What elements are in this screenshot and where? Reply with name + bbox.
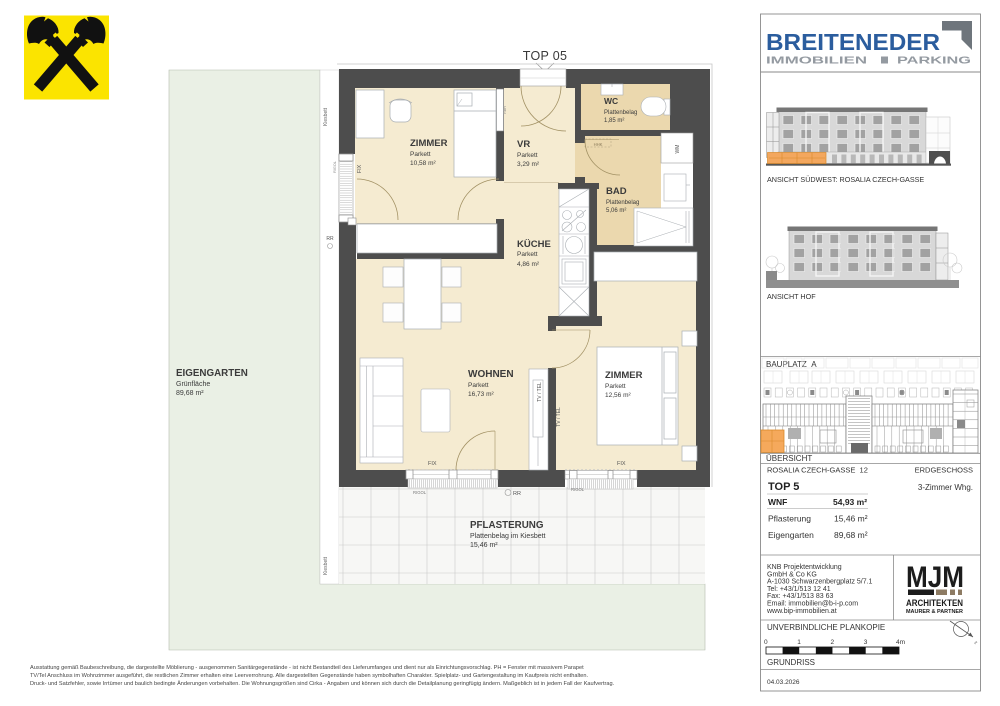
svg-text:TV/Tel Anschluss im Wohnzimmer: TV/Tel Anschluss im Wohnzimmer ausgeführ… xyxy=(30,673,588,679)
svg-text:1: 1 xyxy=(797,639,801,646)
svg-text:RR: RR xyxy=(326,236,334,242)
svg-text:Druck- und Satzfehler, sowie I: Druck- und Satzfehler, sowie Irrtümer un… xyxy=(30,680,615,687)
svg-text:IMMOBILIEN: IMMOBILIEN xyxy=(766,56,867,67)
svg-text:Parkett: Parkett xyxy=(605,383,626,390)
svg-text:BAUPLATZ A: BAUPLATZ A xyxy=(766,360,817,369)
svg-text:GmbH & Co KG: GmbH & Co KG xyxy=(767,571,817,578)
svg-text:www.bip-immobilien.at: www.bip-immobilien.at xyxy=(766,608,837,615)
svg-text:WC: WC xyxy=(604,96,618,106)
svg-text:FIX: FIX xyxy=(617,461,626,467)
svg-text:WNF: WNF xyxy=(768,497,787,507)
svg-text:ZIMMER: ZIMMER xyxy=(605,370,643,381)
svg-text:3: 3 xyxy=(864,639,868,646)
svg-text:1,85 m²: 1,85 m² xyxy=(604,118,624,124)
svg-text:15,46 m²: 15,46 m² xyxy=(834,514,868,524)
svg-text:EIGENGARTEN: EIGENGARTEN xyxy=(176,368,248,379)
svg-text:PFLASTERUNG: PFLASTERUNG xyxy=(470,520,544,531)
svg-text:Kiesbett: Kiesbett xyxy=(323,556,329,575)
svg-text:Tel: +43/1/513 12 41: Tel: +43/1/513 12 41 xyxy=(767,586,831,593)
svg-text:ROSALIA CZECH-GASSE 12: ROSALIA CZECH-GASSE 12 xyxy=(767,466,868,475)
svg-text:Parkett: Parkett xyxy=(517,152,538,159)
svg-text:VR: VR xyxy=(517,139,530,150)
svg-text:BREITENEDER: BREITENEDER xyxy=(766,29,940,55)
svg-text:Kiesbett: Kiesbett xyxy=(323,107,329,126)
svg-text:ANSICHT HOF: ANSICHT HOF xyxy=(767,292,816,301)
svg-text:FIX: FIX xyxy=(357,164,363,173)
svg-text:89,68 m²: 89,68 m² xyxy=(176,390,204,397)
svg-text:ZIMMER: ZIMMER xyxy=(410,138,448,149)
svg-text:4m: 4m xyxy=(896,639,905,646)
svg-text:WOHNEN: WOHNEN xyxy=(468,369,514,380)
svg-text:FIX: FIX xyxy=(428,461,437,467)
svg-text:Grünfläche: Grünfläche xyxy=(176,381,210,388)
svg-text:TOP 5: TOP 5 xyxy=(768,481,799,493)
svg-text:Email: immobilien@b-i-p.com: Email: immobilien@b-i-p.com xyxy=(767,601,858,608)
svg-text:ANSICHT SÜDWEST: ROSALIA CZECH: ANSICHT SÜDWEST: ROSALIA CZECH-GASSE xyxy=(767,175,924,184)
svg-text:16,73 m²: 16,73 m² xyxy=(468,391,494,398)
svg-text:04.03.2026: 04.03.2026 xyxy=(767,679,800,686)
svg-text:0: 0 xyxy=(764,639,768,646)
svg-text:10,58 m²: 10,58 m² xyxy=(410,160,436,167)
svg-text:3,29 m²: 3,29 m² xyxy=(517,161,540,168)
svg-text:MAURER & PARTNER: MAURER & PARTNER xyxy=(906,609,963,615)
svg-text:RBH: RBH xyxy=(503,106,507,114)
svg-text:Parkett: Parkett xyxy=(410,151,431,158)
svg-text:TV / TEL: TV / TEL xyxy=(537,382,543,402)
svg-text:UNVERBINDLICHE PLANKOPIE: UNVERBINDLICHE PLANKOPIE xyxy=(767,623,885,632)
svg-text:GRUNDRISS: GRUNDRISS xyxy=(767,658,815,667)
svg-text:Plattenbelag im Kiesbett: Plattenbelag im Kiesbett xyxy=(470,533,546,540)
svg-text:89,68 m²: 89,68 m² xyxy=(834,530,868,540)
svg-text:HHK: HHK xyxy=(594,142,603,147)
svg-text:TOP 05: TOP 05 xyxy=(523,49,567,63)
svg-text:WM: WM xyxy=(675,145,681,154)
svg-text:2: 2 xyxy=(831,639,835,646)
svg-text:RIGOL: RIGOL xyxy=(413,490,427,495)
svg-text:A-1030 Schwarzenbergplatz 5/7.: A-1030 Schwarzenbergplatz 5/7.1 xyxy=(767,579,873,586)
svg-text:4,86 m²: 4,86 m² xyxy=(517,261,540,268)
svg-text:ARCHITEKTEN: ARCHITEKTEN xyxy=(906,598,963,608)
svg-text:PARKING: PARKING xyxy=(897,56,972,67)
svg-text:Plattenbelag: Plattenbelag xyxy=(606,200,639,206)
svg-text:12,56 m²: 12,56 m² xyxy=(605,392,631,399)
svg-text:Pflasterung: Pflasterung xyxy=(768,514,811,524)
svg-text:ERDGESCHOSS: ERDGESCHOSS xyxy=(915,466,973,475)
svg-text:Plattenbelag: Plattenbelag xyxy=(604,110,637,116)
svg-text:ÜBERSICHT: ÜBERSICHT xyxy=(766,454,812,463)
svg-text:MJM: MJM xyxy=(906,561,964,594)
svg-text:54,93 m²: 54,93 m² xyxy=(833,497,867,507)
svg-text:TV / TEL: TV / TEL xyxy=(556,407,562,427)
svg-text:Parkett: Parkett xyxy=(517,251,538,258)
svg-text:Fax: +43/1/513 83 63: Fax: +43/1/513 83 63 xyxy=(767,593,833,600)
svg-text:15,46 m²: 15,46 m² xyxy=(470,542,498,549)
svg-text:5,06 m²: 5,06 m² xyxy=(606,208,626,214)
svg-text:Parkett: Parkett xyxy=(468,382,489,389)
svg-text:RIGOL: RIGOL xyxy=(333,161,337,173)
svg-text:RR: RR xyxy=(513,491,521,497)
svg-text:RIGOL: RIGOL xyxy=(571,487,585,492)
svg-text:KÜCHE: KÜCHE xyxy=(517,239,551,250)
svg-text:KNB Projektentwicklung: KNB Projektentwicklung xyxy=(767,564,842,571)
svg-text:Eigengarten: Eigengarten xyxy=(768,530,814,540)
svg-text:Ausstattung gemäß Baubeschreib: Ausstattung gemäß Baubeschreibung, die d… xyxy=(30,665,584,671)
svg-text:3-Zimmer Whg.: 3-Zimmer Whg. xyxy=(918,483,973,492)
svg-text:BAD: BAD xyxy=(606,186,627,197)
